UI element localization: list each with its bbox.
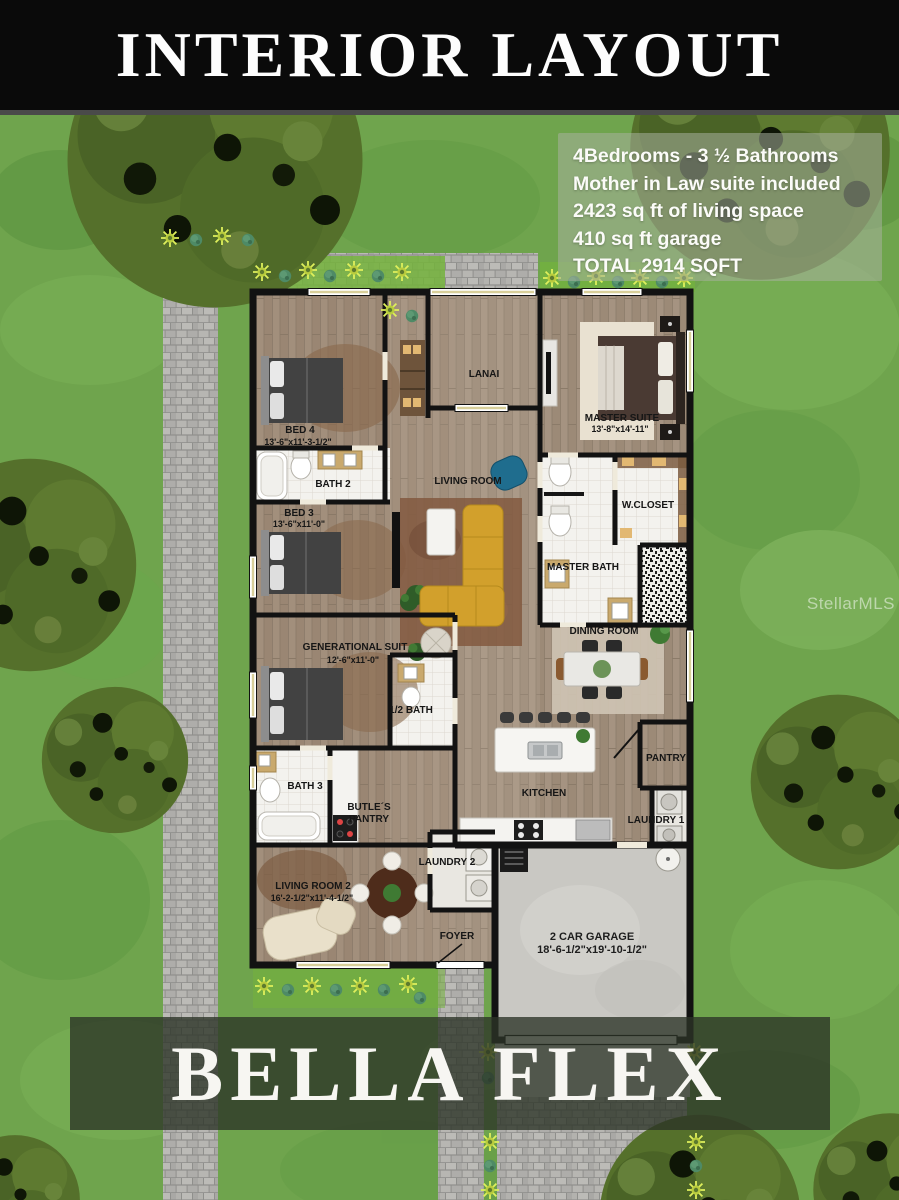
room-dims-master: 13'-8"x14'-11"	[591, 424, 648, 434]
room-label-butlers-1: BUTLE´S	[347, 802, 391, 813]
room-label-foyer: FOYER	[440, 931, 475, 942]
page-title: INTERIOR LAYOUT	[116, 18, 784, 92]
info-suite: Mother in Law suite included	[573, 171, 882, 199]
room-label-laundry2: LAUNDRY 2	[419, 857, 476, 868]
room-label-living: LIVING ROOM	[434, 476, 501, 487]
info-bed-bath: 4Bedrooms - 3 ½ Bathrooms	[573, 143, 882, 171]
room-dims-garage: 18'-6-1/2"x19'-10-1/2"	[537, 944, 647, 956]
room-label-butlers-2: PANTRY	[349, 814, 389, 825]
room-label-living2: LIVING ROOM 2	[275, 881, 351, 892]
room-label-kitchen: KITCHEN	[522, 788, 566, 799]
bed4-furniture	[261, 356, 343, 425]
butlers-pantry-counter	[332, 750, 358, 845]
generational-furniture	[261, 666, 343, 742]
room-label-half-bath: 1/2 BATH	[389, 705, 433, 716]
room-label-master-bath: MASTER BATH	[547, 562, 619, 573]
room-label-generational: GENERATIONAL SUIT	[303, 642, 408, 653]
room-label-bath3: BATH 3	[287, 781, 323, 792]
room-label-laundry1: LAUNDRY 1	[628, 815, 685, 826]
room-label-bed3: BED 3	[284, 508, 314, 519]
room-label-bed4: BED 4	[285, 425, 315, 436]
plan-name: BELLA FLEX	[171, 1029, 729, 1119]
info-panel: 4Bedrooms - 3 ½ Bathrooms Mother in Law …	[558, 133, 882, 281]
header-banner: INTERIOR LAYOUT	[0, 0, 899, 115]
bed3-furniture	[261, 530, 341, 596]
room-label-master: MASTER SUITE	[585, 413, 660, 424]
room-label-dining: DINING ROOM	[570, 626, 639, 637]
info-total-sqft: TOTAL 2914 SQFT	[573, 253, 882, 281]
footer-banner: BELLA FLEX	[70, 1017, 830, 1130]
room-dims-bed4: 13'-6"x11'-3-1/2"	[264, 437, 331, 447]
info-living-sqft: 2423 sq ft of living space	[573, 198, 882, 226]
floor-plan-poster: BED 4 13'-6"x11'-3-1/2" BATH 2 BED 3 13'…	[0, 0, 899, 1200]
room-label-lanai: LANAI	[469, 369, 500, 380]
room-label-pantry: PANTRY	[646, 753, 686, 764]
room-dims-generational: 12'-6"x11'-0"	[327, 655, 379, 665]
info-garage-sqft: 410 sq ft garage	[573, 226, 882, 254]
room-label-wcloset: W.CLOSET	[622, 500, 674, 511]
room-dims-bed3: 13'-6"x11'-0"	[273, 519, 325, 529]
room-dims-living2: 16'-2-1/2"x11'-4-1/2"	[271, 893, 353, 903]
stellar-mls-watermark: StellarMLS	[807, 594, 895, 614]
room-label-bath2: BATH 2	[315, 479, 351, 490]
room-label-garage: 2 CAR GARAGE	[550, 931, 634, 943]
